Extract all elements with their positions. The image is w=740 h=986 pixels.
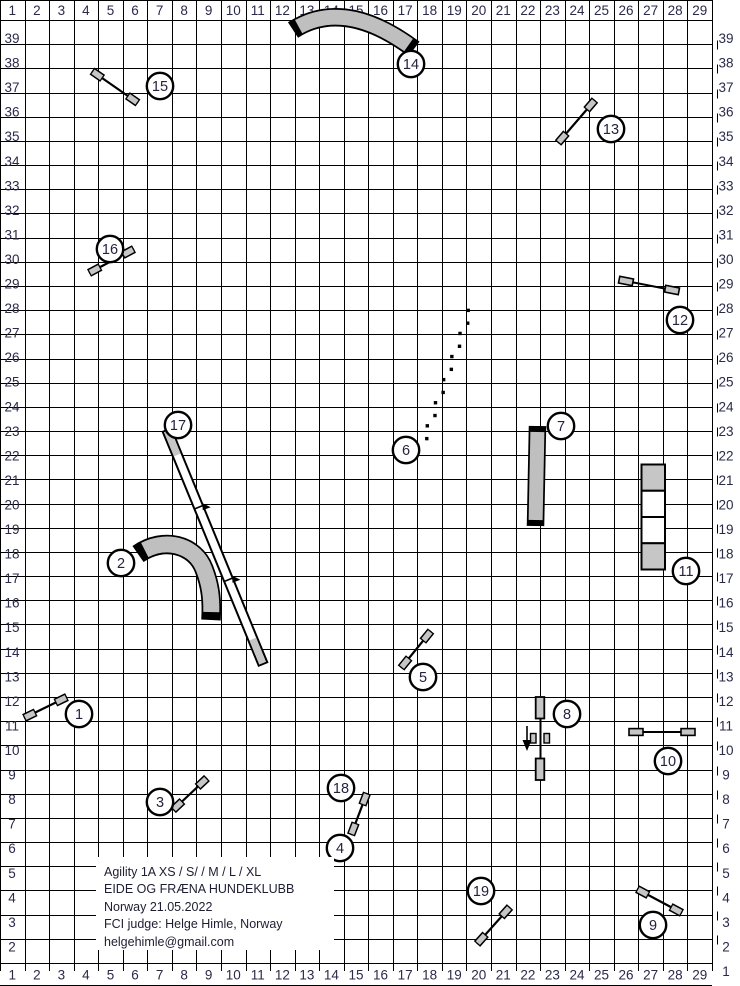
- obstacle-2: [138, 544, 211, 620]
- column-label-bottom: 21: [496, 968, 511, 983]
- weave-pole: [425, 437, 428, 440]
- row-label-left: 16: [4, 596, 19, 611]
- column-label-top: 10: [226, 3, 241, 18]
- weave-pole: [426, 424, 429, 427]
- column-label-top: 3: [58, 3, 66, 18]
- column-label-bottom: 4: [82, 968, 90, 983]
- column-label-bottom: 6: [131, 968, 139, 983]
- obstacle-6: [425, 309, 470, 441]
- obstacle-8-number: 8: [563, 707, 571, 723]
- row-label-right: 33: [718, 178, 733, 193]
- obstacle-8: [523, 697, 550, 780]
- row-label-left: 24: [4, 399, 20, 414]
- column-label-bottom: 12: [275, 968, 290, 983]
- column-label-top: 22: [520, 3, 535, 18]
- column-label-bottom: 19: [447, 968, 462, 983]
- column-label-top: 9: [205, 3, 213, 18]
- jump-wing: [681, 729, 695, 736]
- row-label-left: 11: [5, 718, 19, 733]
- row-label-right: 26: [718, 350, 733, 365]
- row-label-left: 32: [4, 203, 19, 218]
- jump-wing: [629, 729, 643, 736]
- row-label-left: 5: [8, 866, 16, 881]
- obstacle-19: [477, 907, 510, 944]
- column-label-top: 7: [156, 3, 164, 18]
- row-label-right: 35: [718, 129, 733, 144]
- row-label-left: 3: [8, 915, 16, 930]
- column-label-top: 6: [131, 3, 139, 18]
- obstacle-12: [618, 276, 679, 294]
- grid-lines: [0, 0, 718, 986]
- obstacle-18-number: 18: [333, 781, 349, 797]
- obstacle-5-number: 5: [419, 670, 427, 686]
- row-label-right: 13: [718, 669, 733, 684]
- obstacle-7: [536, 426, 538, 526]
- info-judge-line: FCI judge: Helge Himle, Norway: [104, 916, 334, 933]
- weave-pole: [433, 414, 436, 417]
- jump-wing: [351, 824, 355, 834]
- row-label-left: 37: [4, 80, 19, 95]
- row-label-right: 34: [718, 154, 734, 169]
- row-label-left: 30: [4, 252, 19, 267]
- obstacle-1-number: 1: [75, 707, 83, 723]
- row-label-right: 1: [722, 964, 730, 979]
- obstacle-11: [642, 465, 666, 570]
- row-label-right: 17: [718, 571, 733, 586]
- column-label-top: 27: [643, 3, 658, 18]
- row-label-left: 2: [8, 939, 16, 954]
- row-label-left: 35: [4, 129, 19, 144]
- row-label-right: 39: [718, 31, 733, 46]
- row-label-left: 15: [4, 620, 19, 635]
- column-label-bottom: 25: [594, 968, 609, 983]
- row-label-left: 21: [4, 473, 19, 488]
- row-label-right: 5: [722, 866, 730, 881]
- row-label-right: 9: [722, 768, 730, 783]
- row-label-left: 33: [4, 178, 19, 193]
- obstacle-12-number: 12: [672, 313, 688, 329]
- obstacle-10-number: 10: [660, 754, 676, 770]
- obstacle-2-number: 2: [117, 556, 125, 572]
- jump-cup: [531, 734, 537, 744]
- row-label-left: 20: [4, 497, 19, 512]
- obstacle-15-number: 15: [152, 79, 168, 95]
- row-label-right: 21: [718, 473, 733, 488]
- row-label-left: 34: [4, 154, 20, 169]
- grid-labels: 1122334455667788991010111112121313141415…: [4, 3, 734, 983]
- row-label-left: 39: [4, 31, 19, 46]
- row-label-left: 23: [4, 424, 19, 439]
- column-label-bottom: 24: [569, 968, 585, 983]
- info-email-line: helgehimle@gmail.com: [104, 934, 334, 951]
- row-label-left: 6: [8, 841, 16, 856]
- row-label-left: 4: [8, 890, 16, 905]
- obstacle-1: [24, 697, 67, 718]
- column-label-bottom: 1: [9, 968, 17, 983]
- agility-course-map: 1122334455667788991010111112121313141415…: [0, 0, 740, 986]
- weave-pole: [450, 355, 453, 358]
- row-label-left: 28: [4, 301, 19, 316]
- row-label-right: 11: [719, 718, 733, 733]
- row-label-right: 25: [718, 375, 733, 390]
- obstacle-4-number: 4: [336, 841, 344, 857]
- obstacle-6-number: 6: [402, 443, 410, 459]
- row-label-right: 8: [722, 792, 730, 807]
- obstacle-7-number: 7: [557, 419, 565, 435]
- weave-pole: [458, 332, 461, 335]
- column-label-bottom: 28: [668, 968, 683, 983]
- obstacle-markers: 12345678910111213141516171819: [66, 51, 699, 938]
- obstacle-9-number: 9: [649, 918, 657, 934]
- column-label-top: 21: [496, 3, 511, 18]
- long-jump-unit: [642, 465, 666, 491]
- column-label-top: 28: [668, 3, 683, 18]
- row-label-left: 13: [4, 669, 19, 684]
- row-label-right: 3: [722, 915, 730, 930]
- row-label-right: 7: [722, 817, 730, 832]
- info-club-line: EIDE OG FRÆNA HUNDEKLUBB: [104, 881, 334, 898]
- column-label-top: 24: [569, 3, 585, 18]
- column-label-top: 8: [180, 3, 188, 18]
- row-label-right: 12: [718, 694, 733, 709]
- info-date-line: Norway 21.05.2022: [104, 899, 334, 916]
- row-label-right: 20: [718, 497, 733, 512]
- row-label-left: 8: [8, 792, 16, 807]
- jump-wing: [536, 697, 545, 719]
- column-label-top: 19: [447, 3, 462, 18]
- column-label-bottom: 8: [180, 968, 188, 983]
- obstacle-9: [637, 889, 682, 913]
- column-label-bottom: 22: [520, 968, 535, 983]
- row-label-left: 12: [4, 694, 19, 709]
- column-label-top: 18: [422, 3, 437, 18]
- row-label-left: 18: [4, 547, 19, 562]
- column-label-top: 1: [9, 3, 17, 18]
- course-grid: 1122334455667788991010111112121313141415…: [0, 0, 740, 986]
- row-label-right: 31: [718, 227, 733, 242]
- column-label-bottom: 20: [471, 968, 486, 983]
- column-label-bottom: 5: [107, 968, 115, 983]
- long-jump-unit: [642, 517, 666, 543]
- row-label-right: 22: [718, 448, 733, 463]
- weave-pole: [441, 391, 444, 394]
- column-label-bottom: 27: [643, 968, 658, 983]
- row-label-right: 23: [718, 424, 733, 439]
- row-label-right: 27: [718, 326, 733, 341]
- row-label-left: 22: [4, 448, 19, 463]
- jump-wing: [363, 794, 367, 804]
- obstacle-16-number: 16: [102, 242, 118, 258]
- jump-wing: [618, 276, 633, 285]
- jump-cup: [544, 734, 550, 744]
- column-label-top: 23: [545, 3, 560, 18]
- column-label-bottom: 13: [299, 968, 314, 983]
- row-label-right: 2: [722, 939, 730, 954]
- column-label-top: 29: [692, 3, 707, 18]
- column-label-bottom: 14: [324, 968, 340, 983]
- column-label-top: 26: [619, 3, 634, 18]
- row-label-right: 6: [722, 841, 730, 856]
- row-label-right: 29: [718, 277, 733, 292]
- row-label-left: 17: [4, 571, 19, 586]
- row-label-left: 31: [4, 227, 19, 242]
- column-label-bottom: 15: [348, 968, 363, 983]
- column-label-bottom: 29: [692, 968, 707, 983]
- column-label-top: 2: [33, 3, 41, 18]
- obstacle-18: [351, 793, 367, 835]
- weave-pole: [442, 378, 445, 381]
- info-class-line: Agility 1A XS / S/ / M / L / XL: [104, 864, 334, 881]
- column-label-top: 5: [107, 3, 115, 18]
- obstacle-17-number: 17: [170, 418, 186, 434]
- tunnel-body: [138, 544, 211, 620]
- column-label-bottom: 2: [33, 968, 41, 983]
- column-label-bottom: 10: [226, 968, 241, 983]
- obstacles: [24, 17, 695, 944]
- row-label-left: 19: [4, 522, 19, 537]
- column-label-top: 11: [251, 3, 265, 18]
- row-label-right: 14: [718, 645, 734, 660]
- column-label-top: 25: [594, 3, 609, 18]
- obstacle-10: [629, 729, 695, 736]
- row-label-right: 18: [718, 547, 733, 562]
- row-label-left: 7: [8, 817, 16, 832]
- column-label-bottom: 9: [205, 968, 213, 983]
- row-label-left: 9: [8, 768, 16, 783]
- row-label-right: 38: [718, 56, 733, 71]
- column-label-bottom: 17: [398, 968, 413, 983]
- row-label-right: 16: [718, 596, 733, 611]
- row-label-right: 28: [718, 301, 733, 316]
- row-label-left: 14: [4, 645, 20, 660]
- row-label-left: 27: [4, 326, 19, 341]
- tunnel-body: [536, 426, 538, 526]
- row-label-left: 25: [4, 375, 19, 390]
- weave-pole: [466, 321, 469, 324]
- obstacle-11-number: 11: [678, 564, 693, 580]
- column-label-bottom: 26: [619, 968, 634, 983]
- row-label-right: 10: [718, 743, 733, 758]
- long-jump-unit: [642, 543, 666, 569]
- obstacle-13-number: 13: [603, 122, 619, 138]
- obstacle-3-number: 3: [156, 795, 164, 811]
- row-label-left: 10: [4, 743, 19, 758]
- obstacle-14-number: 14: [403, 57, 419, 73]
- weave-pole: [467, 309, 470, 312]
- row-label-left: 36: [4, 105, 19, 120]
- course-info-box: Agility 1A XS / S/ / M / L / XL EIDE OG …: [96, 857, 334, 950]
- weave-pole: [450, 368, 453, 371]
- column-label-top: 17: [398, 3, 413, 18]
- row-label-right: 32: [718, 203, 733, 218]
- column-label-top: 20: [471, 3, 486, 18]
- row-label-right: 4: [722, 890, 730, 905]
- row-label-right: 30: [718, 252, 733, 267]
- weave-pole: [458, 345, 461, 348]
- row-label-left: 29: [4, 277, 19, 292]
- row-label-right: 36: [718, 105, 733, 120]
- column-label-top: 12: [275, 3, 290, 18]
- column-label-top: 4: [82, 3, 90, 18]
- obstacle-19-number: 19: [473, 884, 489, 900]
- weave-pole: [434, 401, 437, 404]
- column-label-top: 16: [373, 3, 388, 18]
- column-label-bottom: 7: [156, 968, 164, 983]
- jump-wing: [536, 759, 545, 781]
- long-jump-unit: [642, 491, 666, 517]
- row-label-right: 37: [718, 80, 733, 95]
- row-label-left: 38: [4, 56, 19, 71]
- row-label-left: 26: [4, 350, 19, 365]
- row-label-right: 24: [718, 399, 734, 414]
- column-label-bottom: 3: [58, 968, 66, 983]
- column-label-bottom: 11: [251, 968, 265, 983]
- row-label-right: 15: [718, 620, 733, 635]
- column-label-bottom: 23: [545, 968, 560, 983]
- row-label-right: 19: [718, 522, 733, 537]
- column-label-bottom: 18: [422, 968, 437, 983]
- column-label-bottom: 16: [373, 968, 388, 983]
